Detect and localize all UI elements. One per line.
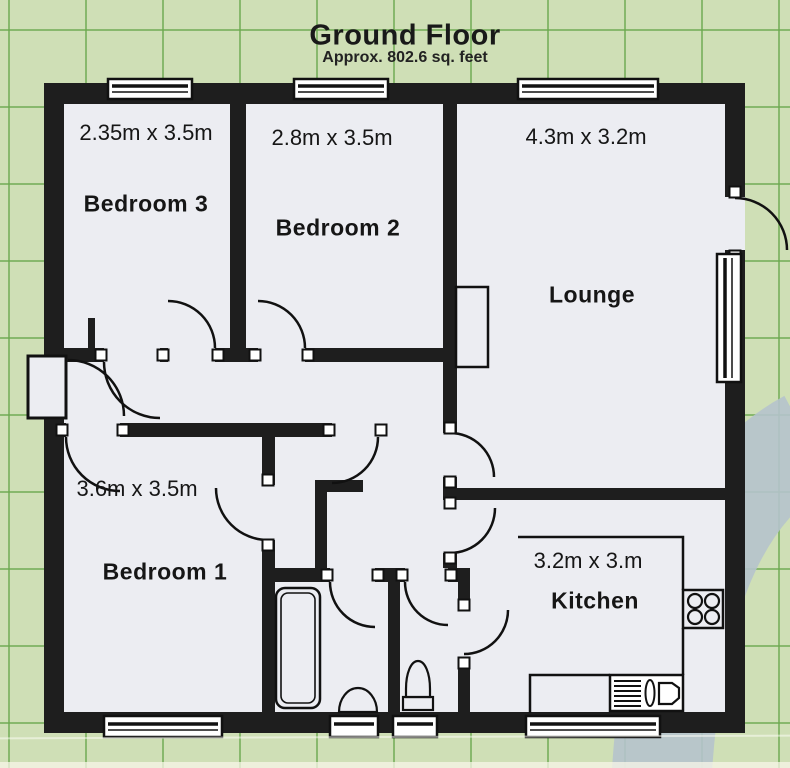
wall-kitchen-top <box>443 488 745 500</box>
kitchen-window <box>526 716 660 737</box>
bedroom2-dimensions: 2.8m x 3.5m <box>271 125 392 151</box>
lounge-window <box>518 79 658 99</box>
bedroom1-window <box>104 716 222 737</box>
outer-wall-left-upper <box>44 83 64 358</box>
wall-bedroom3-closet <box>88 318 95 352</box>
bedroom3-label: Bedroom 3 <box>84 191 209 218</box>
floor-plan-drawing <box>0 0 790 768</box>
bedroom3-dimensions: 2.35m x 3.5m <box>79 120 212 146</box>
bedroom2-window <box>294 79 388 99</box>
sink-drainer-icon <box>610 675 683 711</box>
floor-plan-page: Ground Floor Approx. 802.6 sq. feet 2.35… <box>0 0 790 768</box>
outer-wall-right-upper <box>725 83 745 197</box>
page-title: Ground Floor <box>309 20 500 53</box>
bathroom-window <box>330 716 378 737</box>
entrance-porch <box>28 356 66 418</box>
bedroom3-window <box>108 79 192 99</box>
bedroom1-dimensions: 3.6m x 3.5m <box>76 476 197 502</box>
hob-icon <box>683 590 723 628</box>
kitchen-dimensions: 3.2m x 3.m <box>534 548 643 574</box>
lounge-label: Lounge <box>549 282 635 309</box>
lounge-side-window <box>717 254 741 382</box>
bedroom2-label: Bedroom 2 <box>276 215 401 242</box>
outer-wall-left-lower <box>44 418 64 713</box>
page-subtitle: Approx. 802.6 sq. feet <box>322 49 487 67</box>
wall-bedroom2-lounge <box>443 104 457 433</box>
bedroom1-label: Bedroom 1 <box>103 559 228 586</box>
wc-window <box>393 716 437 737</box>
bath-icon <box>276 588 320 708</box>
wall-bedroom3-bedroom2 <box>230 104 246 362</box>
lounge-recess <box>456 287 488 367</box>
wall-cupboard-side <box>315 492 327 568</box>
wall-bathroom-wc <box>388 582 400 714</box>
lounge-dimensions: 4.3m x 3.2m <box>525 124 646 150</box>
paper-edge <box>0 762 790 768</box>
kitchen-label: Kitchen <box>551 588 639 615</box>
